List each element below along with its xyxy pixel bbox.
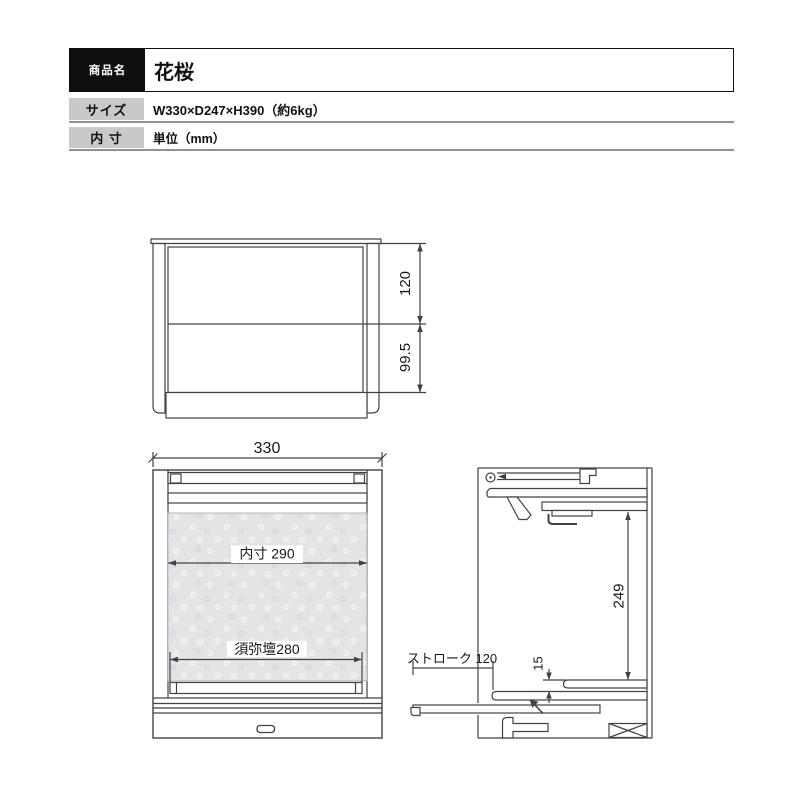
technical-drawing: 120 99.5 330 内寸 290 xyxy=(0,0,800,800)
stay-bracket xyxy=(552,511,592,517)
top-board xyxy=(487,489,647,498)
dim-label-330: 330 xyxy=(254,440,281,457)
upper-board xyxy=(168,493,367,503)
base-board xyxy=(166,393,367,419)
base-bracket xyxy=(503,718,549,739)
front-view-closed: 120 99.5 xyxy=(151,239,426,418)
dim-label-stroke: ストローク 120 xyxy=(407,651,497,666)
door-stay-arm xyxy=(507,497,531,520)
upper-inner-board xyxy=(542,502,647,511)
top-rail xyxy=(168,473,367,484)
dim-label-120: 120 xyxy=(397,271,414,296)
top-cap xyxy=(151,239,381,244)
dim-label-99-5: 99.5 xyxy=(397,343,414,372)
left-side-panel xyxy=(153,244,165,414)
drawer-pull xyxy=(257,726,275,733)
slide-rail-board xyxy=(492,692,647,701)
door-front xyxy=(168,247,363,393)
dim-label-249: 249 xyxy=(611,583,628,608)
dim-label-inner-width: 内寸 290 xyxy=(239,546,294,562)
slide-tray-extended xyxy=(413,705,600,713)
right-side-panel xyxy=(367,244,379,414)
dais-shelf xyxy=(170,683,362,694)
slide-tray-front-lip xyxy=(411,708,420,716)
dim-label-dais-width: 須弥壇280 xyxy=(234,641,300,657)
dim-label-15: 15 xyxy=(531,656,546,670)
side-view: 249 ストローク 120 15 xyxy=(407,468,652,738)
rail-catch xyxy=(580,469,596,484)
dais-top-board xyxy=(564,680,648,688)
front-view-open: 330 内寸 290 須弥壇280 xyxy=(149,440,387,738)
